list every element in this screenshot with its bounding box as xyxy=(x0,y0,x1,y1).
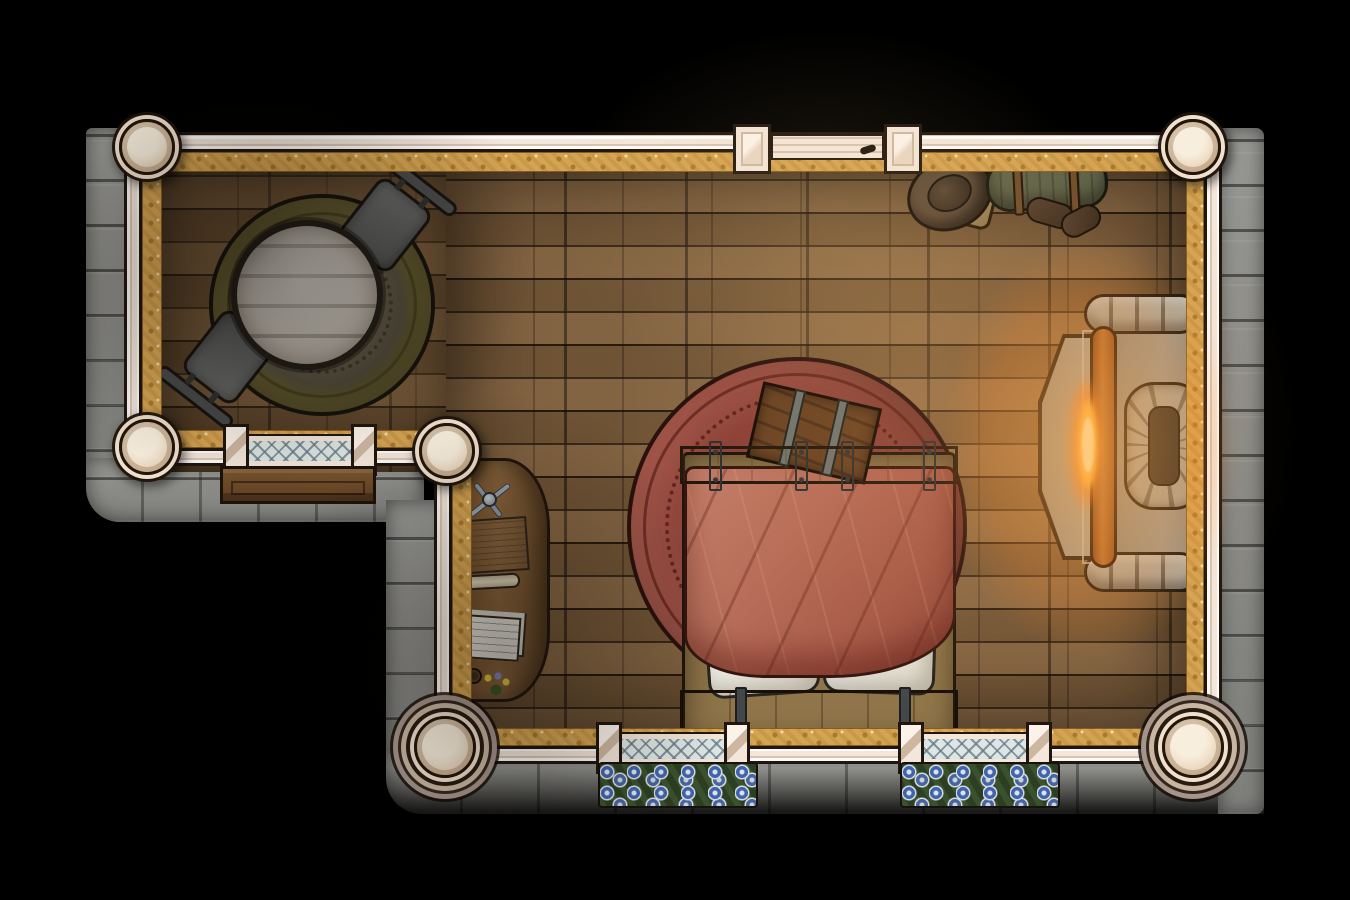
wall-right xyxy=(1204,148,1222,764)
window-bottom-right[interactable] xyxy=(922,734,1030,764)
hat-crown xyxy=(921,167,978,219)
flower-box-right[interactable] xyxy=(900,762,1060,808)
flower-box-left[interactable] xyxy=(598,762,758,808)
bed-blanket[interactable] xyxy=(684,466,956,678)
pillar-top-left xyxy=(119,119,175,175)
battlemap-stage xyxy=(0,0,1350,900)
footboard-strap xyxy=(923,441,936,491)
open-book[interactable] xyxy=(466,516,530,574)
dividers-tool[interactable] xyxy=(468,480,512,520)
footboard-strap xyxy=(795,441,808,491)
wall-left xyxy=(124,148,142,466)
door-post-panel xyxy=(741,132,763,166)
pillar-top-right xyxy=(1165,119,1221,175)
door-post-left xyxy=(733,124,771,174)
pillar-inner-corner xyxy=(419,423,475,479)
window-midleft[interactable] xyxy=(247,436,353,466)
wall-trim-left xyxy=(142,162,162,438)
door-post-panel xyxy=(892,132,914,166)
window-bottom-left[interactable] xyxy=(620,734,728,764)
tool-hub xyxy=(482,492,497,507)
wall-trim-bottom xyxy=(466,728,1188,746)
stone-wall-exterior-right xyxy=(1218,128,1264,814)
wall-trim-right xyxy=(1186,166,1204,728)
flower-posy[interactable] xyxy=(482,672,512,698)
exterior-bench[interactable] xyxy=(220,466,376,504)
footboard-strap xyxy=(841,441,854,491)
wall-trim-top xyxy=(160,152,1188,172)
bed-footboard xyxy=(680,446,958,484)
pillar-bottom-left xyxy=(414,716,476,778)
pillar-mid-left xyxy=(119,419,175,475)
round-table[interactable] xyxy=(231,220,383,370)
pillar-bottom-right xyxy=(1162,716,1224,778)
footboard-strap xyxy=(709,441,722,491)
paper-scroll[interactable] xyxy=(464,573,521,591)
chimney-flue xyxy=(1148,406,1180,486)
wall-trim-lowerleft xyxy=(452,462,472,730)
wall-bottom xyxy=(434,746,1194,764)
bench-seat xyxy=(231,481,365,495)
door-post-right xyxy=(884,124,922,174)
flame-core xyxy=(1082,418,1094,472)
wall-top xyxy=(148,132,1192,152)
